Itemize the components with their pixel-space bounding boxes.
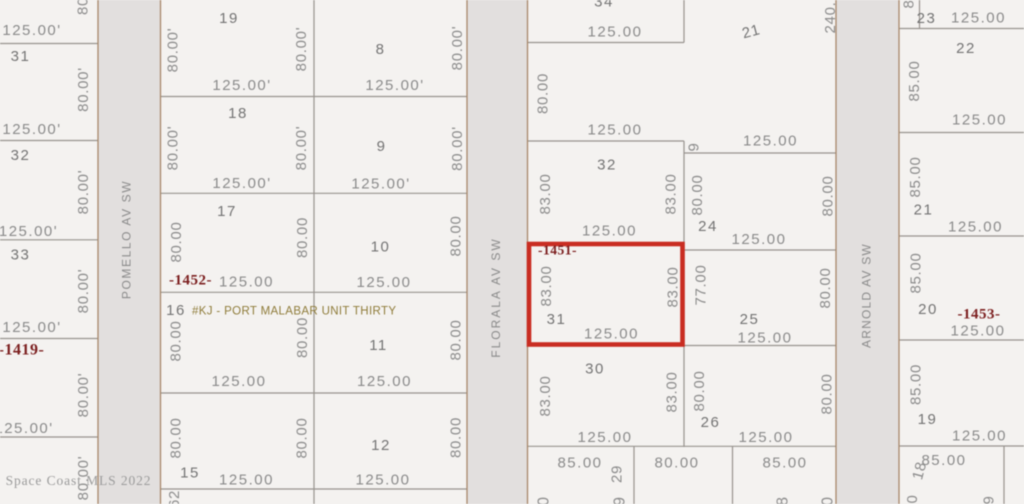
svg-text:125.00': 125.00' <box>0 223 58 240</box>
svg-text:83.00: 83.00 <box>664 266 681 307</box>
svg-text:125.00: 125.00 <box>951 9 1006 26</box>
svg-text:0: 0 <box>904 494 921 503</box>
svg-text:#KJ - PORT MALABAR UNIT THIRTY: #KJ - PORT MALABAR UNIT THIRTY <box>192 306 396 318</box>
svg-text:32: 32 <box>11 147 31 164</box>
svg-text:125.00: 125.00 <box>952 111 1007 128</box>
svg-text:11: 11 <box>369 337 388 354</box>
svg-text:80.00: 80.00 <box>447 215 464 256</box>
svg-text:80.00: 80.00 <box>294 317 311 358</box>
svg-text:80.00: 80.00 <box>818 373 835 414</box>
svg-text:8: 8 <box>775 496 792 504</box>
svg-text:0: 0 <box>820 496 837 504</box>
svg-text:80.00: 80.00 <box>534 73 551 114</box>
svg-text:10: 10 <box>371 238 391 255</box>
svg-text:83.00: 83.00 <box>537 173 554 214</box>
svg-text:19: 19 <box>918 411 938 428</box>
svg-text:125.00: 125.00 <box>951 322 1006 339</box>
svg-text:83.00: 83.00 <box>538 265 555 306</box>
svg-text:125.00: 125.00 <box>738 329 793 346</box>
svg-text:125.00: 125.00 <box>357 373 412 390</box>
svg-text:19: 19 <box>219 10 239 27</box>
svg-text:80.00: 80.00 <box>447 417 464 458</box>
svg-text:25: 25 <box>740 311 760 328</box>
svg-text:80.00': 80.00' <box>293 126 310 171</box>
svg-text:125.00': 125.00' <box>351 175 410 192</box>
svg-text:125.00: 125.00 <box>948 218 1003 235</box>
svg-text:30: 30 <box>585 360 605 377</box>
svg-text:125.00: 125.00 <box>588 23 643 40</box>
svg-text:9: 9 <box>980 495 997 504</box>
svg-text:0: 0 <box>536 496 553 504</box>
svg-text:125.00': 125.00' <box>365 77 424 94</box>
svg-text:-1452-: -1452- <box>169 272 212 288</box>
svg-text:125.00: 125.00 <box>952 427 1007 444</box>
svg-text:125.00: 125.00 <box>582 222 637 239</box>
svg-text:125.00: 125.00 <box>588 121 643 138</box>
svg-text:125.00: 125.00 <box>212 373 267 390</box>
svg-text:80.00': 80.00' <box>164 126 181 171</box>
svg-text:80.00: 80.00 <box>447 319 464 360</box>
svg-text:125.00: 125.00 <box>732 231 787 248</box>
svg-text:125.00': 125.00' <box>0 420 54 437</box>
svg-text:21: 21 <box>914 201 934 218</box>
svg-text:31: 31 <box>11 48 31 65</box>
svg-text:125.00': 125.00' <box>212 77 271 94</box>
svg-text:125.00: 125.00 <box>219 471 274 488</box>
svg-text:80.00: 80.00 <box>168 221 185 262</box>
svg-text:85.00: 85.00 <box>762 454 807 471</box>
svg-text:8: 8 <box>376 41 386 58</box>
svg-text:80.00': 80.00' <box>75 170 92 215</box>
svg-text:125.00: 125.00 <box>356 471 411 488</box>
svg-text:125.00': 125.00' <box>2 121 61 138</box>
svg-text:80.00': 80.00' <box>164 28 181 73</box>
svg-text:80.00: 80.00 <box>167 320 184 361</box>
svg-text:80.00': 80.00' <box>449 26 466 71</box>
svg-text:85.00: 85.00 <box>907 364 924 405</box>
svg-text:80.00: 80.00 <box>819 175 836 216</box>
svg-text:125.00': 125.00' <box>212 175 271 192</box>
svg-text:-1451-: -1451- <box>538 242 577 257</box>
svg-text:Space Coast MLS 2022: Space Coast MLS 2022 <box>6 473 152 488</box>
svg-text:80.00: 80.00 <box>167 417 184 458</box>
svg-text:80.00': 80.00' <box>75 373 92 418</box>
svg-text:POMELLO AV SW: POMELLO AV SW <box>119 180 133 299</box>
svg-text:85.00: 85.00 <box>906 60 923 101</box>
svg-text:33: 33 <box>11 246 31 263</box>
svg-text:85.00: 85.00 <box>557 454 602 471</box>
svg-text:8: 8 <box>900 0 917 9</box>
svg-text:83.00: 83.00 <box>537 375 554 416</box>
svg-text:80.00: 80.00 <box>294 217 311 258</box>
svg-text:83.00: 83.00 <box>663 371 680 412</box>
svg-text:240.: 240. <box>822 2 839 34</box>
svg-text:125.00: 125.00 <box>578 429 633 446</box>
svg-text:18: 18 <box>228 105 248 122</box>
svg-text:80.00': 80.00' <box>449 126 466 171</box>
svg-text:80.00: 80.00 <box>691 370 708 411</box>
svg-text:23: 23 <box>917 10 937 27</box>
svg-text:32: 32 <box>597 156 617 173</box>
svg-text:125.00': 125.00' <box>2 319 61 336</box>
svg-text:80.00: 80.00 <box>689 174 706 215</box>
svg-text:16: 16 <box>166 302 186 319</box>
svg-text:80.00: 80.00 <box>293 417 310 458</box>
svg-text:85.00: 85.00 <box>907 156 924 197</box>
svg-text:80.00: 80.00 <box>654 454 699 471</box>
svg-text:125.00: 125.00 <box>357 274 412 291</box>
svg-text:80.00': 80.00' <box>75 269 92 314</box>
svg-text:ARNOLD AV SW: ARNOLD AV SW <box>859 243 873 348</box>
svg-text:31: 31 <box>547 311 567 328</box>
svg-text:125.00': 125.00' <box>2 22 61 39</box>
svg-text:85.00: 85.00 <box>907 252 924 293</box>
svg-text:26: 26 <box>701 414 721 431</box>
svg-text:9: 9 <box>685 142 702 151</box>
svg-text:77.00: 77.00 <box>692 264 709 305</box>
svg-text:125.00: 125.00 <box>219 273 274 290</box>
svg-text:12: 12 <box>371 437 391 454</box>
svg-text:125.00: 125.00 <box>584 325 639 342</box>
svg-text:FLORALA AV SW: FLORALA AV SW <box>489 237 503 357</box>
svg-text:80: 80 <box>74 0 91 15</box>
svg-text:125.00: 125.00 <box>739 429 794 446</box>
svg-text:80.00': 80.00' <box>75 67 92 112</box>
svg-text:34: 34 <box>594 0 614 10</box>
svg-text:24: 24 <box>698 218 718 235</box>
svg-text:9: 9 <box>377 138 387 155</box>
svg-text:125.00: 125.00 <box>743 132 798 149</box>
svg-text:17: 17 <box>217 203 237 220</box>
svg-text:62: 62 <box>166 490 183 504</box>
svg-text:-1419-: -1419- <box>0 342 44 359</box>
svg-text:15: 15 <box>180 464 200 481</box>
svg-text:29: 29 <box>608 465 625 483</box>
svg-text:22: 22 <box>956 40 976 57</box>
svg-text:-1453-: -1453- <box>958 306 1001 322</box>
svg-text:9: 9 <box>612 496 629 504</box>
svg-text:80.00': 80.00' <box>293 27 310 72</box>
svg-text:20: 20 <box>918 301 938 318</box>
svg-text:83.00: 83.00 <box>662 173 679 214</box>
svg-text:80.00: 80.00 <box>817 267 834 308</box>
